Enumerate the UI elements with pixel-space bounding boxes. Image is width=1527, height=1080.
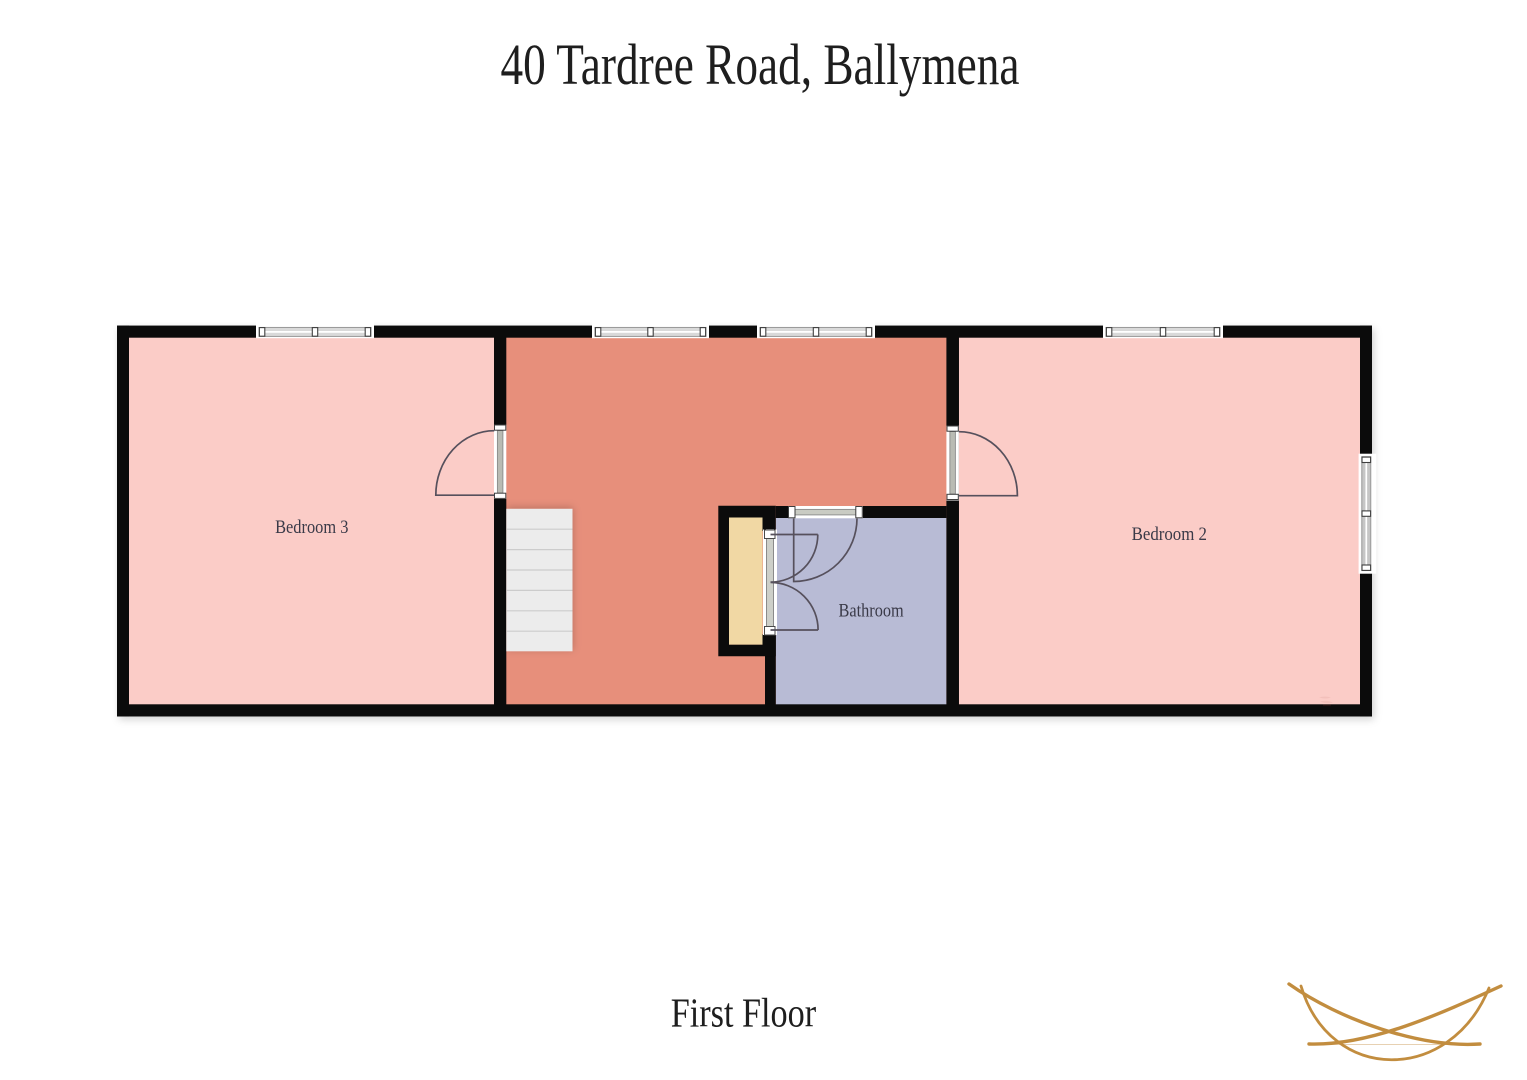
svg-text:40 Tardree Road, Ballymena: 40 Tardree Road, Ballymena	[501, 32, 1020, 97]
svg-text:Bathroom: Bathroom	[839, 601, 904, 622]
svg-text:Bedroom 2: Bedroom 2	[1132, 524, 1207, 545]
svg-text:First Floor: First Floor	[671, 990, 817, 1036]
svg-text:Bedroom 3: Bedroom 3	[275, 517, 348, 538]
